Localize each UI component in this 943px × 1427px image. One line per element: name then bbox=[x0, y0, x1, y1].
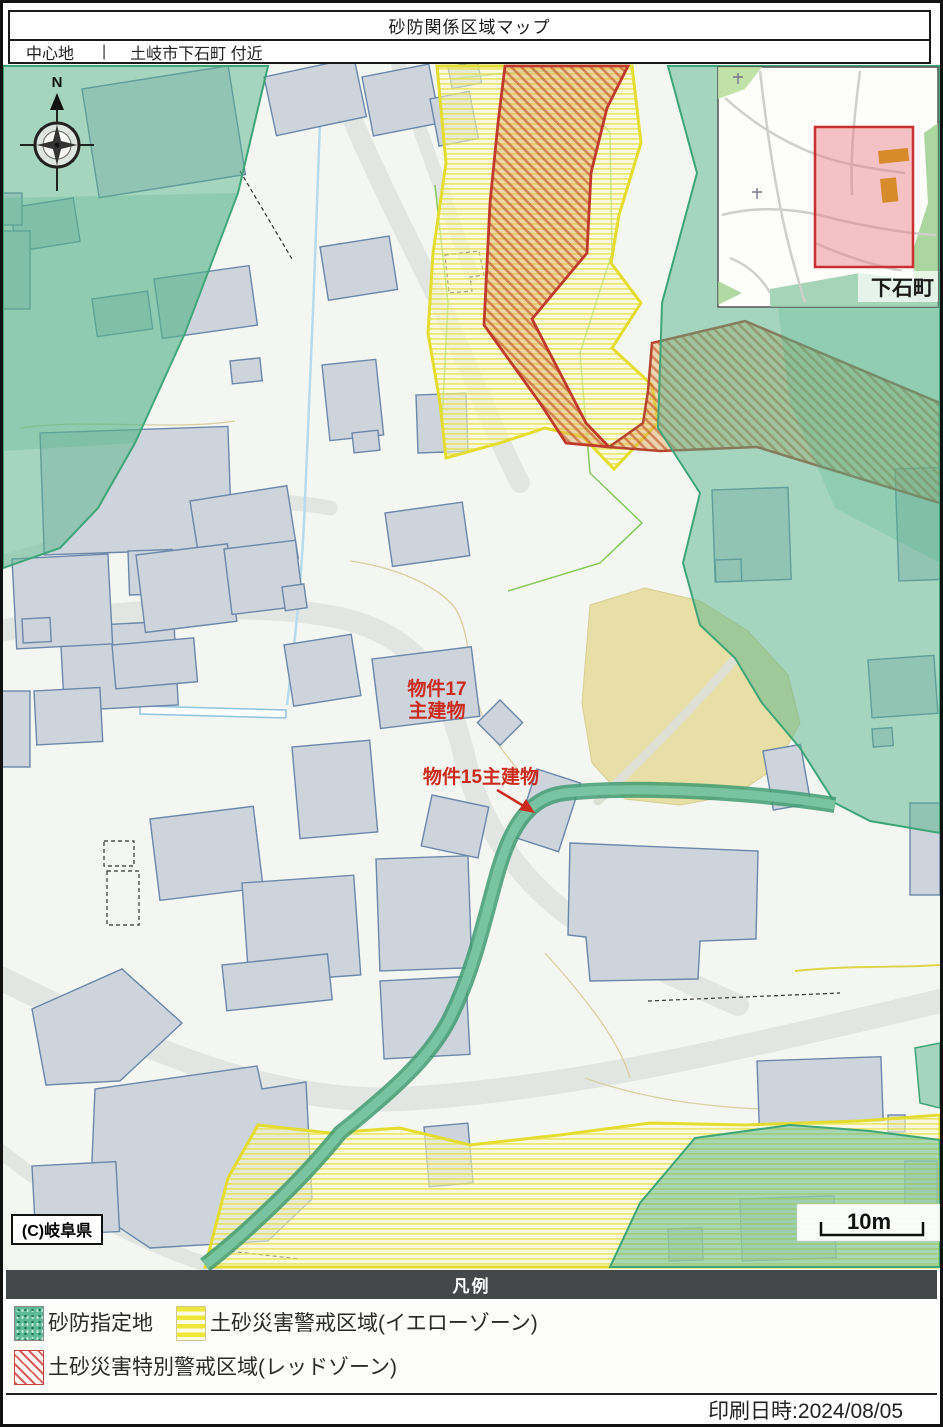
page-title: 砂防関係区域マップ bbox=[8, 10, 931, 41]
property17-label-line1: 物件17 bbox=[407, 677, 466, 700]
legend-header: 凡例 bbox=[6, 1270, 937, 1299]
scale-bar: 10m bbox=[797, 1204, 940, 1241]
hazard-map-page: 砂防関係区域マップ 中心地 | 土岐市下石町 付近 bbox=[0, 0, 943, 1427]
legend-item-label: 土砂災害特別警戒区域(レッドゾーン) bbox=[48, 1350, 397, 1386]
green-stipple-swatch-icon bbox=[14, 1306, 44, 1341]
copyright-text: (C)岐阜県 bbox=[22, 1221, 92, 1240]
yellow-stripe-swatch-icon bbox=[176, 1306, 206, 1341]
property17-label-line2: 主建物 bbox=[408, 699, 465, 722]
compass-north-label: N bbox=[52, 74, 63, 91]
legend-title: 凡例 bbox=[453, 1272, 491, 1297]
legend-item-label: 砂防指定地 bbox=[48, 1306, 153, 1342]
legend-item-yellow-zone: 土砂災害警戒区域(イエローゾーン) bbox=[176, 1306, 538, 1342]
red-hatch-swatch-icon bbox=[14, 1350, 44, 1385]
legend-item-sabo: 砂防指定地 bbox=[14, 1306, 153, 1342]
property15-label: 物件15主建物 bbox=[423, 765, 539, 788]
page-title-text: 砂防関係区域マップ bbox=[389, 13, 551, 38]
scale-label: 10m bbox=[847, 1209, 891, 1234]
legend-item-red-zone: 土砂災害特別警戒区域(レッドゾーン) bbox=[14, 1350, 397, 1386]
inset-view-rectangle bbox=[815, 127, 913, 267]
copyright-box: (C)岐阜県 bbox=[12, 1215, 102, 1244]
center-divider: | bbox=[102, 43, 106, 61]
footer: 印刷日時:2024/08/05 bbox=[6, 1395, 937, 1425]
map-canvas: 下石町 N 物件17 主建物 物件15主建物 (C)岐阜県 bbox=[3, 64, 940, 1270]
legend-item-label: 土砂災害警戒区域(イエローゾーン) bbox=[210, 1306, 538, 1342]
legend: 砂防指定地 土砂災害警戒区域(イエローゾーン) 土砂災害特別警戒区域(レッドゾー… bbox=[6, 1299, 937, 1393]
center-value: 土岐市下石町 付近 bbox=[130, 40, 262, 64]
print-datetime: 印刷日時:2024/08/05 bbox=[708, 1395, 903, 1425]
inset-town-label: 下石町 bbox=[871, 277, 934, 300]
center-location-bar: 中心地 | 土岐市下石町 付近 bbox=[8, 41, 931, 64]
inset-landmark-building2 bbox=[880, 177, 898, 203]
center-label: 中心地 bbox=[26, 40, 74, 64]
map-svg: 下石町 N 物件17 主建物 物件15主建物 (C)岐阜県 bbox=[3, 64, 940, 1270]
inset-map: 下石町 bbox=[718, 67, 938, 307]
